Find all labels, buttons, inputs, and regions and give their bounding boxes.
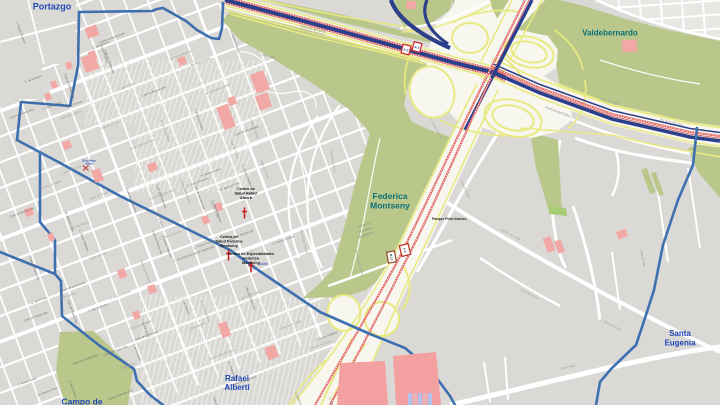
svg-text:Eugenia: Eugenia: [664, 339, 696, 348]
svg-text:Montseny: Montseny: [220, 244, 239, 248]
svg-text:Adolfo: Adolfo: [259, 262, 268, 266]
svg-text:Montseny: Montseny: [370, 201, 410, 211]
svg-text:Salud Rafael: Salud Rafael: [235, 192, 258, 196]
svg-text:Centro de: Centro de: [237, 187, 255, 191]
svg-text:Salud: Salud: [85, 162, 92, 166]
svg-text:Portazgo: Portazgo: [33, 2, 72, 12]
svg-text:Alberti: Alberti: [240, 196, 252, 200]
svg-text:Valdebernardo: Valdebernardo: [582, 29, 638, 38]
svg-text:Federica: Federica: [373, 191, 408, 201]
svg-text:Campo de: Campo de: [61, 397, 102, 405]
svg-text:Santa: Santa: [669, 329, 691, 338]
svg-text:Parque Fidel Alonso: Parque Fidel Alonso: [432, 217, 467, 221]
